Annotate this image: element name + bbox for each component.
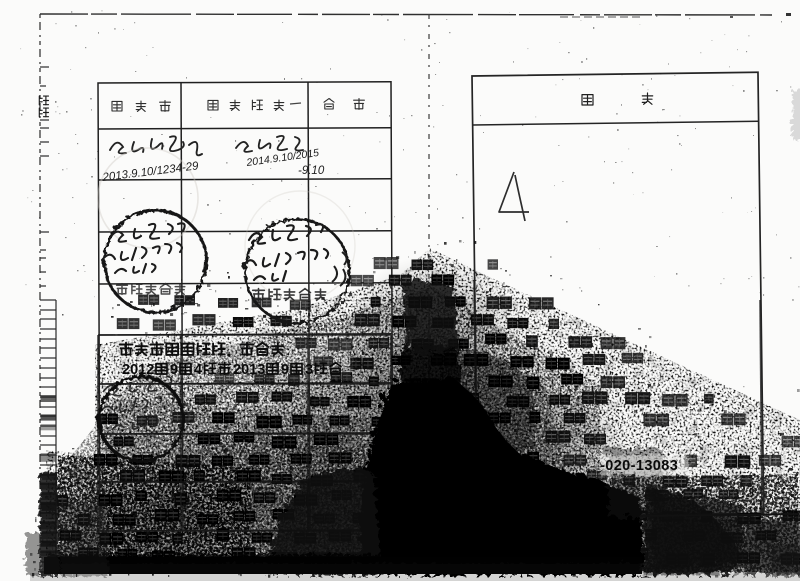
svg-text:4: 4: [194, 362, 202, 378]
svg-text:-9.10: -9.10: [298, 165, 325, 177]
svg-text:3: 3: [305, 362, 313, 378]
svg-text:-020-13083: -020-13083: [600, 458, 678, 474]
svg-text:2013: 2013: [233, 362, 265, 378]
svg-text:9: 9: [170, 362, 178, 378]
svg-text::: :: [286, 343, 290, 358]
svg-text:9: 9: [281, 362, 289, 378]
